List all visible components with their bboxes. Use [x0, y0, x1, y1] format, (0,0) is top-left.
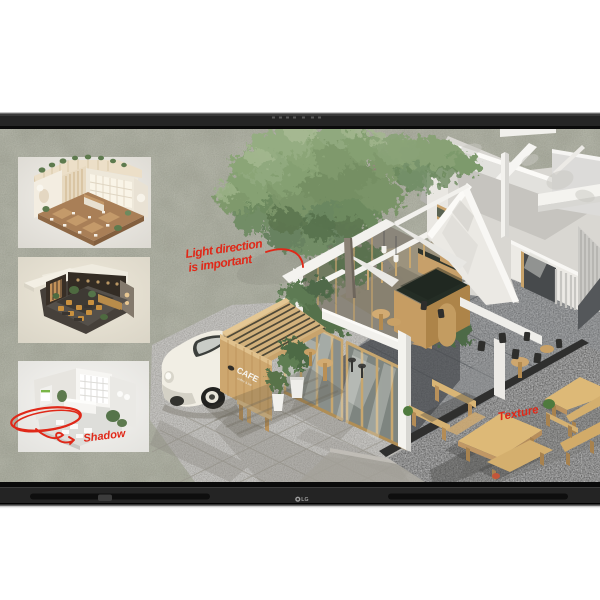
- svg-text:LG: LG: [301, 497, 308, 503]
